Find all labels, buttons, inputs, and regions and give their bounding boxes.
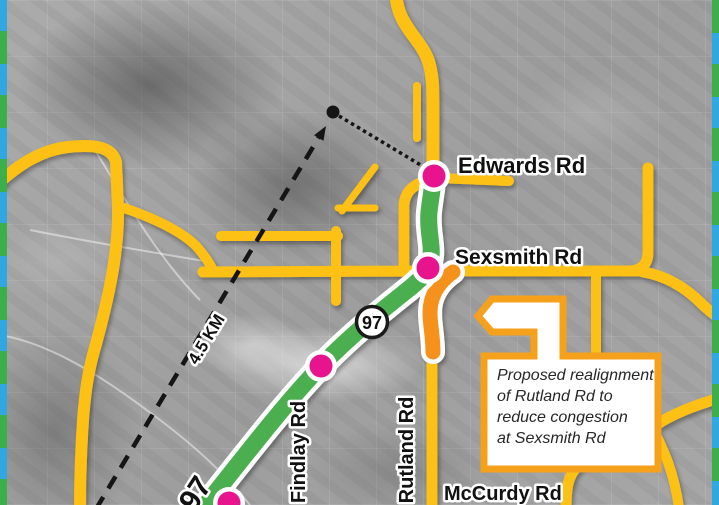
- highway-97-shield: 97: [357, 307, 388, 338]
- realignment-callout: Proposed realignment of Rutland Rd to re…: [478, 299, 658, 469]
- neatline-strip-left: [0, 0, 7, 505]
- road-stub-diagonal: [342, 167, 375, 211]
- map-overlay: 4.5 KM 97 97 Edwards Rd Sexsmith Rd McCu…: [0, 0, 719, 505]
- findlay-intersection-marker: [310, 355, 333, 378]
- callout-line-3: reduce congestion: [497, 409, 628, 426]
- distance-label: 4.5 KM: [184, 311, 229, 368]
- callout-line-4: at Sexsmith Rd: [497, 430, 607, 447]
- edwards-intersection-marker: [423, 165, 446, 188]
- shield-number: 97: [362, 313, 382, 333]
- callout-line-2: of Rutland Rd to: [497, 388, 613, 405]
- findlay-rd-label: Findlay Rd: [288, 401, 310, 503]
- measure-origin-dot: [327, 106, 340, 119]
- dotted-leader-line: [339, 116, 424, 167]
- realignment-road: [430, 272, 453, 352]
- left-diagonal-road: [118, 206, 214, 272]
- callout-line-1: Proposed realignment: [497, 367, 654, 384]
- right-east-exit-road: [643, 272, 719, 320]
- rutland-rd-label: Rutland Rd: [396, 397, 418, 504]
- mccurdy-rd-label: McCurdy Rd: [444, 483, 562, 505]
- neatline-strip-right: [712, 0, 719, 505]
- left-loop-road: [0, 146, 118, 505]
- measure-arrowhead-icon: [314, 126, 326, 141]
- right-vertical-road: [630, 168, 648, 271]
- edwards-rd-label: Edwards Rd: [458, 153, 585, 178]
- sexsmith-intersection-marker: [417, 257, 440, 280]
- map-canvas: 4.5 KM 97 97 Edwards Rd Sexsmith Rd McCu…: [0, 0, 719, 505]
- sexsmith-rd-label: Sexsmith Rd: [455, 246, 582, 269]
